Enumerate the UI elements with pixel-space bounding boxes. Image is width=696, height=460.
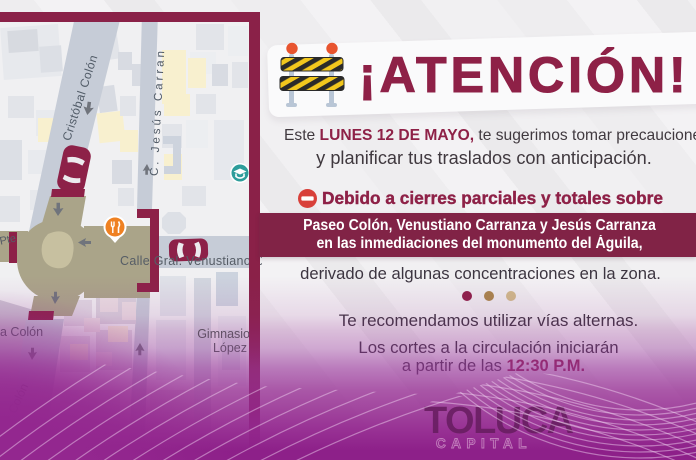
- svg-text:Calle Gral. Venustiano C: Calle Gral. Venustiano C: [120, 254, 262, 268]
- svg-text:López: López: [213, 341, 247, 355]
- svg-text:a Colón: a Colón: [0, 325, 43, 339]
- svg-text:Gimnasio: Gimnasio: [197, 327, 250, 341]
